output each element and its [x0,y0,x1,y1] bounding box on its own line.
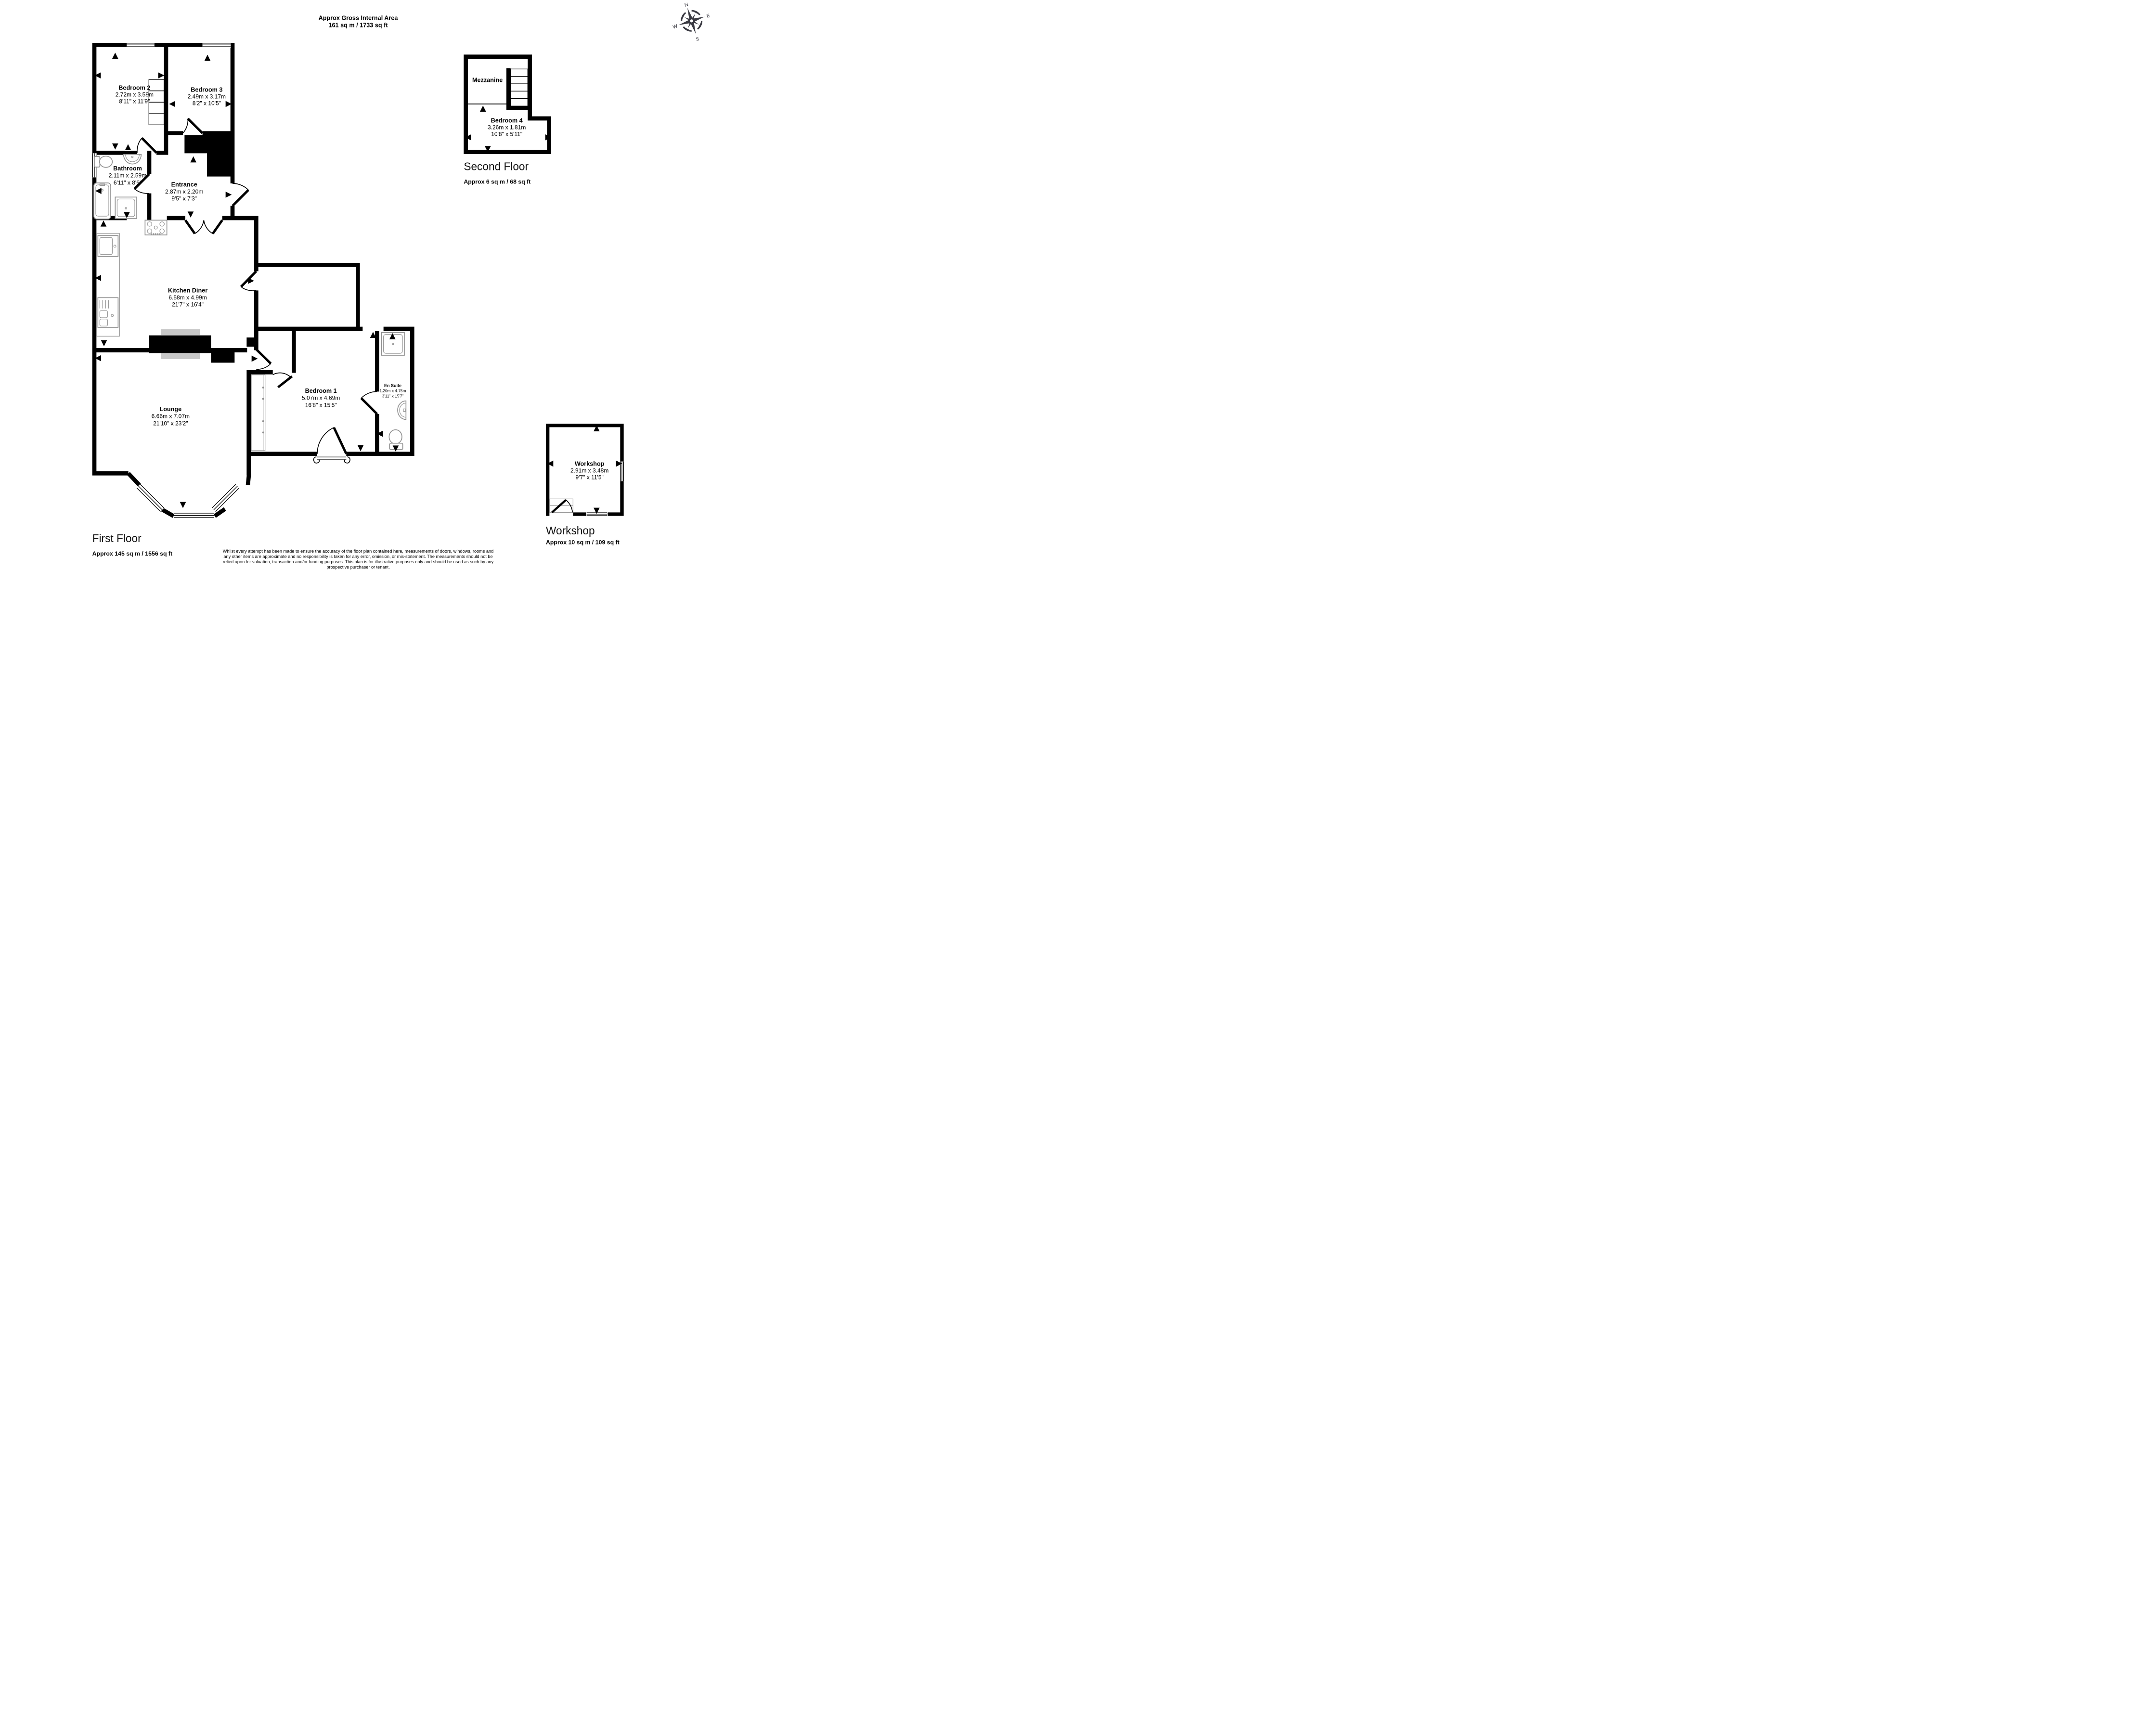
room-name: Bedroom 1 [305,388,337,394]
room-name: En Suite [384,383,401,388]
bathroom-sink-icon [124,155,142,164]
workshop-floor-area: Approx 10 sq m / 109 sq ft [546,539,620,546]
room-imperial: 8'11" x 11'9" [119,98,150,105]
ensuite-door [361,391,377,414]
workshop-door [550,499,573,512]
bedroom4-label: Bedroom 4 3.26m x 1.81m 10'8" x 5'11" [488,117,526,138]
disclaimer-line: any other items are approximate and no r… [223,554,492,559]
bedroom3-label: Bedroom 3 2.49m x 3.17m 8'2" x 10'5" [188,87,226,107]
kitchen-double-sink-icon [98,298,118,327]
first-floor-plan: Bedroom 2 2.72m x 3.59m 8'11" x 11'9" Be… [91,42,414,518]
room-imperial: 21'10" x 23'2" [153,420,188,427]
header: Approx Gross Internal Area 161 sq m / 17… [319,15,399,29]
closet [251,375,265,451]
room-imperial: 9'5" x 7'3" [171,195,196,202]
room-metric: 2.91m x 3.48m [570,467,608,474]
room-metric: 1.20m x 4.75m [379,389,406,393]
compass-n: N [684,2,689,8]
disclaimer-line: Whilst every attempt has been made to en… [223,549,493,554]
kitchen-double-doors [185,220,222,233]
room-imperial: 9'7" x 11'5" [576,474,604,480]
bedroom2-door [137,138,156,153]
workshop-plan: Workshop 2.91m x 3.48m 9'7" x 11'5" Work… [546,424,624,546]
compass-s: S [695,37,700,43]
bathtub-icon [94,183,111,219]
second-floor-stairs [511,69,528,106]
bedroom1-inner-door [273,373,292,388]
room-imperial: 8'2" x 10'5" [193,100,221,107]
room-metric: 2.11m x 2.59m [109,172,146,179]
first-floor-area: Approx 145 sq m / 1556 sq ft [92,550,172,557]
room-name: Workshop [575,460,605,467]
kitchen-label: Kitchen Diner 6.58m x 4.99m 21'7" x 16'4… [168,287,207,308]
room-metric: 2.49m x 3.17m [188,93,226,100]
room-name: Bedroom 2 [118,85,150,91]
toilet-icon [94,156,112,167]
room-imperial: 6'11" x 8'6" [114,179,142,186]
room-metric: 6.66m x 7.07m [152,413,190,420]
first-floor-footer: First Floor Approx 145 sq m / 1556 sq ft [92,532,172,557]
first-floor-walls [92,43,414,476]
first-floor-title: First Floor [92,532,142,544]
scroll-ornament-icon [314,457,350,463]
room-name: Lounge [159,406,181,413]
stairs-unit [149,79,164,125]
room-name: Mezzanine [472,77,503,84]
bay-window-right [212,484,239,512]
page-title: Approx Gross Internal Area [319,15,399,22]
front-door [233,183,248,206]
compass-e: E [706,13,711,19]
lounge-label: Lounge 6.66m x 7.07m 21'10" x 23'2" [152,406,190,427]
floorplan-page: Bedroom 2 2.72m x 3.59m 8'11" x 11'9" Be… [0,0,715,579]
floorplan-drawing: Bedroom 2 2.72m x 3.59m 8'11" x 11'9" Be… [0,0,715,579]
room-name: Bathroom [113,165,142,172]
second-floor-area: Approx 6 sq m / 68 sq ft [464,179,530,185]
room-metric: 2.87m x 2.20m [165,188,203,195]
lounge-door [256,350,271,370]
bedroom1-label: Bedroom 1 5.07m x 4.69m 16'8" x 15'5" [302,388,340,408]
bedroom1-patio-door [314,428,350,463]
room-imperial: 3'11" x 15'7" [382,393,403,398]
compass-w: W [672,24,678,30]
ensuite-label: En Suite 1.20m x 4.75m 3'11" x 15'7" [379,383,406,398]
room-name: Entrance [171,181,197,188]
second-floor-title: Second Floor [464,160,529,172]
entrance-label: Entrance 2.87m x 2.20m 9'5" x 7'3" [165,181,203,202]
page-title-area: 161 sq m / 1733 sq ft [328,22,388,29]
workshop-label: Workshop 2.91m x 3.48m 9'7" x 11'5" [570,460,608,480]
room-imperial: 16'8" x 15'5" [305,402,337,408]
bedroom3-door [183,118,203,133]
room-name: Kitchen Diner [168,287,207,294]
bedroom2-label: Bedroom 2 2.72m x 3.59m 8'11" x 11'9" [116,85,154,105]
workshop-floor-title: Workshop [546,524,595,537]
hob-icon [145,220,167,235]
bay-window-center [174,513,214,518]
room-metric: 6.58m x 4.99m [168,294,207,301]
room-imperial: 21'7" x 16'4" [172,301,204,308]
ensuite-sink-icon [398,401,406,420]
window-top-left [127,42,154,48]
room-name: Bedroom 4 [491,117,523,124]
room-metric: 3.26m x 1.81m [488,124,526,131]
disclaimer-line: relied upon for valuation, transaction a… [223,559,494,564]
second-floor-plan: Mezzanine Bedroom 4 3.26m x 1.81m 10'8" … [464,54,551,185]
mezzanine-label: Mezzanine [472,77,503,84]
bay-window-left [137,484,164,512]
disclaimer: Whilst every attempt has been made to en… [223,549,494,570]
room-metric: 2.72m x 3.59m [116,91,154,98]
room-imperial: 10'8" x 5'11" [491,131,522,138]
bathroom-label: Bathroom 2.11m x 2.59m 6'11" x 8'6" [109,165,146,186]
window-top-right [203,42,231,48]
room-metric: 5.07m x 4.69m [302,395,340,402]
room-name: Bedroom 3 [191,87,222,93]
kitchen-sink-icon [98,235,118,256]
compass-icon: N E S W [667,0,715,48]
disclaimer-line: prospective purchaser or tenant. [326,565,389,570]
